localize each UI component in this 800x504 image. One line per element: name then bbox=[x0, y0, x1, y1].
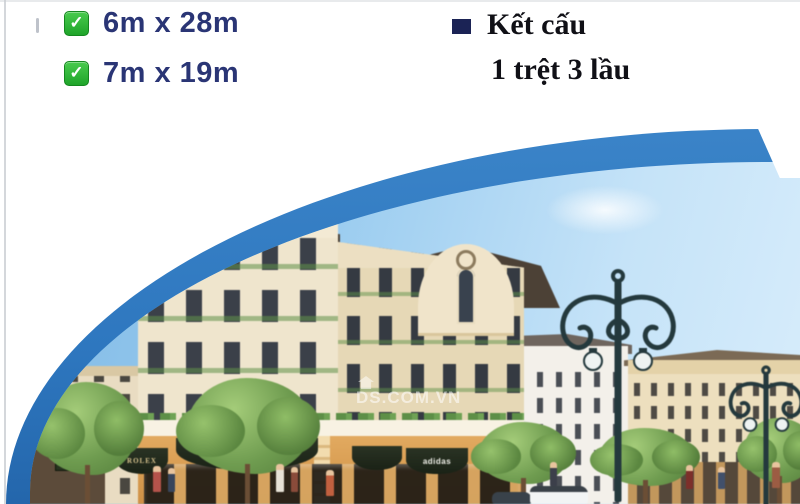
spec-list: ✓ 6m x 28m ✓ 7m x 19m bbox=[64, 9, 239, 88]
spec-label: 7m x 19m bbox=[103, 59, 239, 88]
green-checkbox-icon: ✓ bbox=[64, 61, 89, 86]
watermark-text: DS.COM.VN bbox=[356, 388, 461, 408]
render-photo: ROLEX ROLEX adidas bbox=[30, 162, 800, 504]
pediment-arch-window bbox=[457, 268, 475, 324]
pedestrian bbox=[772, 462, 780, 488]
pedestrian bbox=[718, 467, 725, 489]
spec-label: 6m x 28m bbox=[103, 9, 239, 38]
pedestrian bbox=[168, 468, 175, 492]
pedestrian bbox=[291, 467, 298, 492]
check-glyph: ✓ bbox=[69, 14, 83, 31]
top-edge-line bbox=[0, 0, 800, 2]
structure-info: Kết cấu 1 trệt 3 lầu bbox=[452, 10, 630, 85]
spec-row: ✓ 7m x 19m bbox=[64, 59, 239, 88]
pedestrian bbox=[550, 462, 557, 486]
pedestrian bbox=[326, 470, 334, 496]
pedestrian bbox=[276, 464, 284, 492]
cloud bbox=[545, 185, 665, 235]
bullet-square-icon bbox=[452, 19, 471, 34]
structure-lines: Kết cấu 1 trệt 3 lầu bbox=[487, 10, 630, 85]
check-glyph: ✓ bbox=[69, 64, 83, 81]
pediment-clock-motif bbox=[456, 250, 476, 270]
structure-title: Kết cấu bbox=[487, 10, 630, 40]
photo-ribbon: ROLEX ROLEX adidas bbox=[6, 129, 800, 504]
pedestrian bbox=[686, 465, 693, 489]
street-lamp-icon bbox=[718, 360, 800, 504]
flyer: ✓ 6m x 28m ✓ 7m x 19m Kết cấu 1 trệt 3 l… bbox=[0, 0, 800, 504]
white-car bbox=[530, 486, 588, 504]
tree-crown bbox=[38, 382, 138, 475]
dark-car bbox=[492, 492, 532, 504]
shop-awning bbox=[352, 446, 402, 470]
street-lamp-icon bbox=[543, 260, 693, 504]
scan-artifact bbox=[36, 18, 39, 33]
tree-crown bbox=[186, 378, 312, 474]
tree-trunk bbox=[85, 465, 90, 504]
adidas-awning: adidas bbox=[406, 448, 468, 474]
green-checkbox-icon: ✓ bbox=[64, 11, 89, 36]
tree-trunk bbox=[245, 464, 250, 504]
spec-row: ✓ 6m x 28m bbox=[64, 9, 239, 38]
left-edge-line bbox=[4, 0, 6, 504]
street-tree bbox=[38, 382, 138, 504]
structure-subtitle: 1 trệt 3 lầu bbox=[491, 55, 630, 85]
pedestrian bbox=[153, 466, 161, 492]
render-scene: ROLEX ROLEX adidas bbox=[30, 162, 800, 504]
